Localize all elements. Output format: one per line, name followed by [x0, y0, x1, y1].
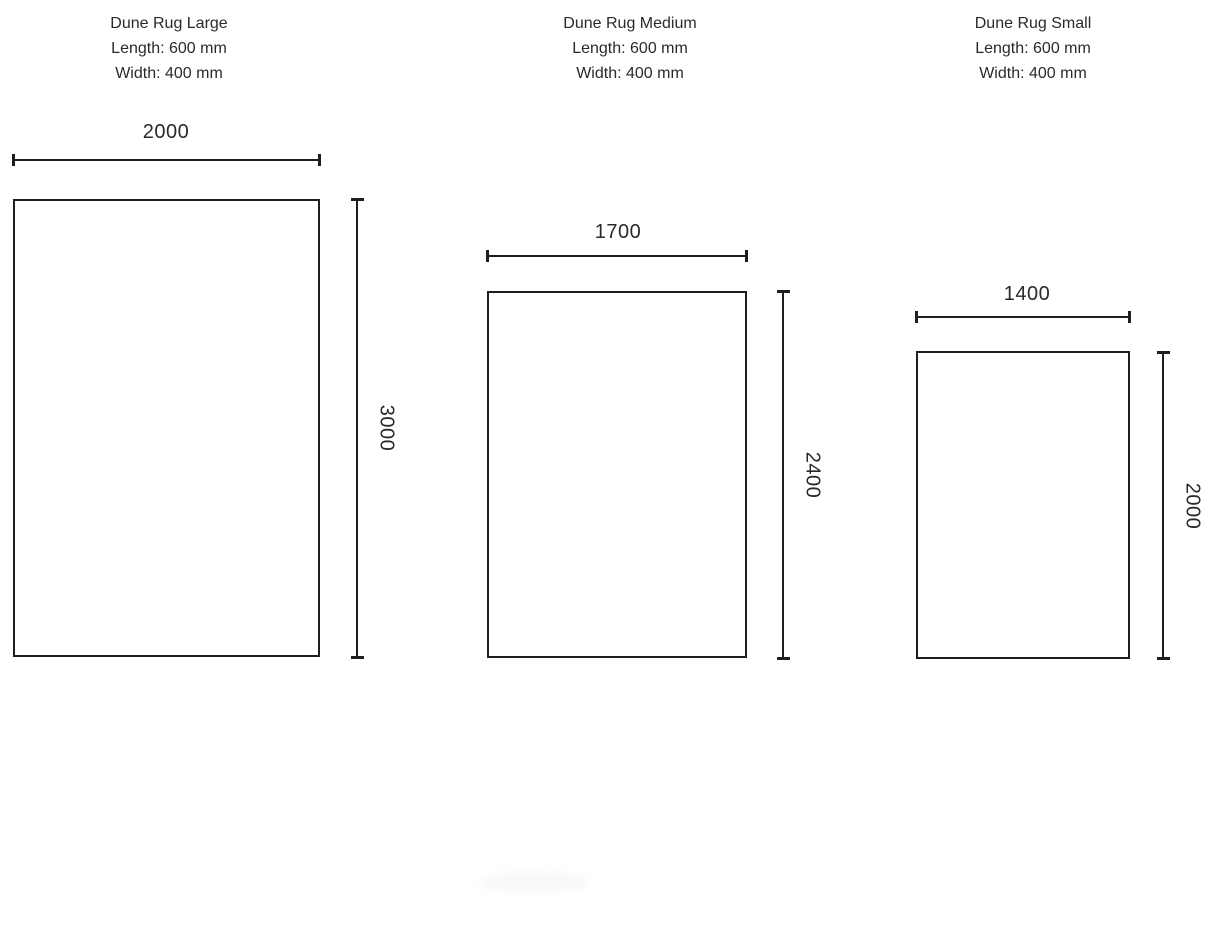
width-dimension-line [916, 316, 1130, 318]
rug-dimension-diagram: Dune Rug Large Length: 600 mm Width: 400… [0, 0, 1218, 927]
figure-title: Dune Rug Medium [563, 11, 696, 36]
figure-spec-length: Length: 600 mm [975, 36, 1092, 61]
width-dimension-line [13, 159, 320, 161]
dimension-tick-icon [777, 290, 790, 293]
dimension-tick-icon [1157, 657, 1170, 660]
width-dimension-value: 1700 [595, 221, 642, 244]
figure-spec-width: Width: 400 mm [110, 61, 227, 86]
dimension-tick-icon [12, 154, 15, 166]
figure-title: Dune Rug Large [110, 11, 227, 36]
height-dimension-value: 3000 [375, 405, 398, 452]
figure-spec-width: Width: 400 mm [975, 61, 1092, 86]
dimension-tick-icon [486, 250, 489, 262]
figure-title: Dune Rug Small [975, 11, 1092, 36]
height-dimension-value: 2400 [801, 452, 824, 499]
dimension-tick-icon [915, 311, 918, 323]
dimension-tick-icon [745, 250, 748, 262]
height-dimension-line [356, 199, 358, 658]
height-dimension-line [782, 291, 784, 659]
width-dimension-value: 2000 [143, 121, 190, 144]
rug-outline-small [916, 351, 1130, 659]
figure-spec-length: Length: 600 mm [110, 36, 227, 61]
height-dimension-value: 2000 [1181, 483, 1204, 530]
dimension-tick-icon [777, 657, 790, 660]
figure-header: Dune Rug Small Length: 600 mm Width: 400… [975, 11, 1092, 86]
width-dimension-value: 1400 [1004, 283, 1051, 306]
faint-watermark-smudge [478, 872, 590, 892]
dimension-tick-icon [1128, 311, 1131, 323]
rug-outline-medium [487, 291, 747, 658]
dimension-tick-icon [351, 656, 364, 659]
height-dimension-line [1162, 352, 1164, 659]
dimension-tick-icon [351, 198, 364, 201]
figure-spec-length: Length: 600 mm [563, 36, 696, 61]
dimension-tick-icon [1157, 351, 1170, 354]
figure-header: Dune Rug Medium Length: 600 mm Width: 40… [563, 11, 696, 86]
rug-outline-large [13, 199, 320, 657]
figure-spec-width: Width: 400 mm [563, 61, 696, 86]
dimension-tick-icon [318, 154, 321, 166]
figure-header: Dune Rug Large Length: 600 mm Width: 400… [110, 11, 227, 86]
width-dimension-line [487, 255, 747, 257]
